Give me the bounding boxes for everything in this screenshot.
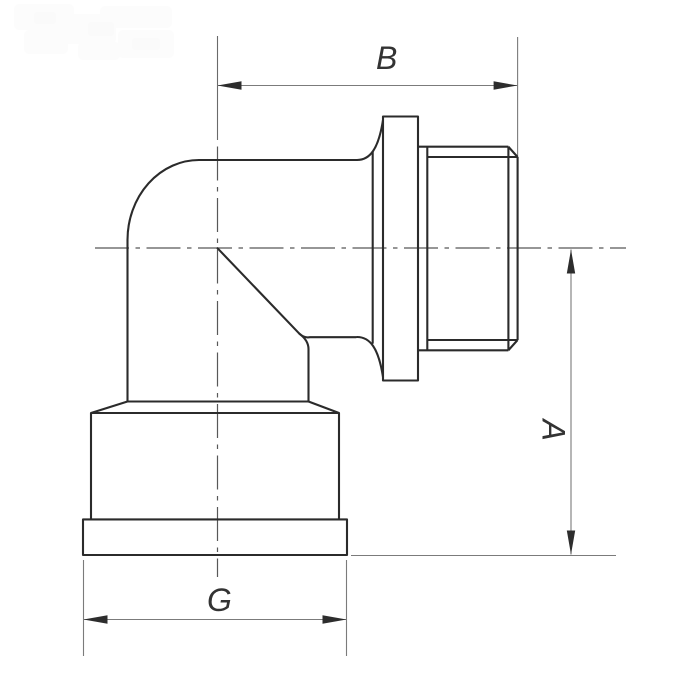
svg-text:B: B (376, 40, 397, 76)
svg-text:A: A (536, 418, 572, 441)
svg-text:G: G (207, 582, 232, 618)
